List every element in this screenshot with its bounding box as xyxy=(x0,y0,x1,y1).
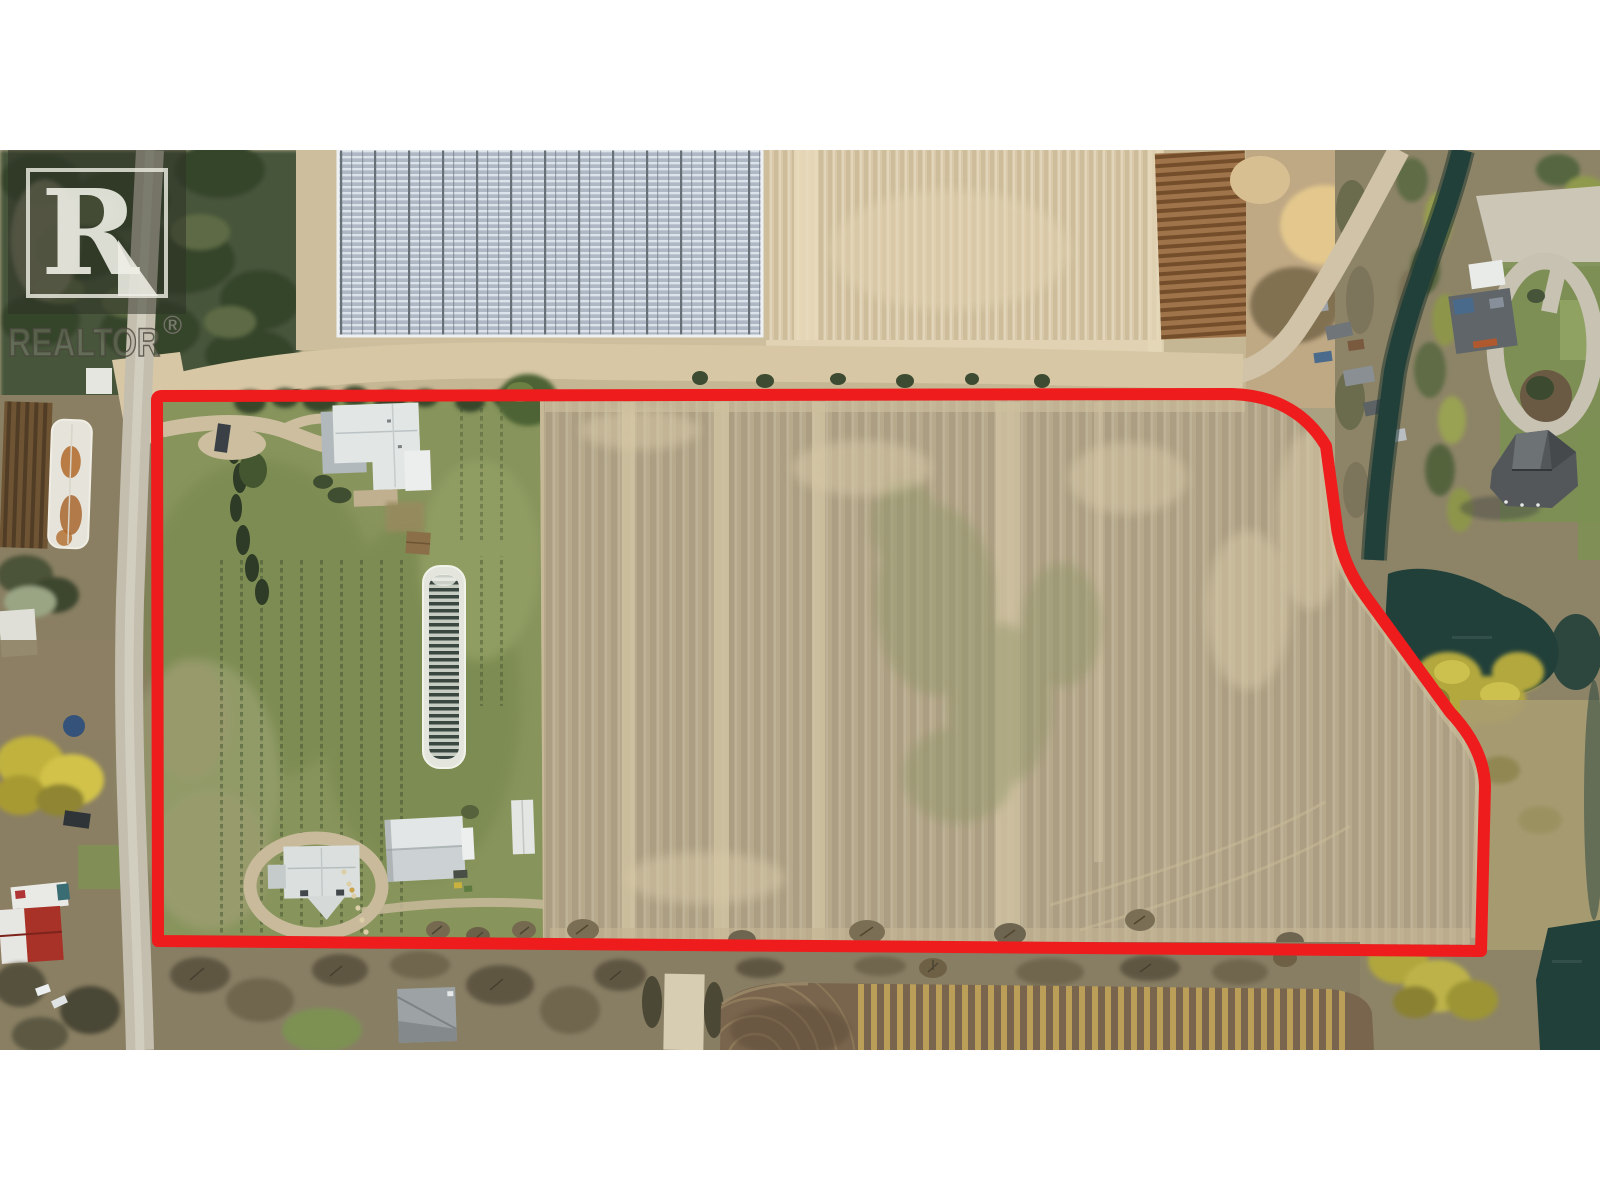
island-tree xyxy=(1526,376,1554,400)
gray-house-south xyxy=(397,987,457,1043)
aerial-property-listing-photo: R REALTOR ® xyxy=(0,0,1600,1200)
tall-white-shed xyxy=(511,800,535,855)
watermark-logo-letter: R xyxy=(41,163,140,302)
brown-shed xyxy=(405,531,430,555)
watermark-brand-text: REALTOR xyxy=(8,321,160,365)
realtor-watermark: R REALTOR ® xyxy=(8,150,186,365)
driveway-connector xyxy=(1549,262,1560,312)
small-white-shed xyxy=(86,368,112,394)
top-field xyxy=(766,149,1164,364)
greenhouse-bays xyxy=(338,149,762,336)
white-trailer xyxy=(1468,260,1505,289)
hoop-greenhouse xyxy=(423,566,465,768)
field-lane xyxy=(622,402,635,942)
orchard-rows xyxy=(466,556,510,706)
letterbox-top xyxy=(0,0,1600,150)
aerial-photo: R REALTOR ® xyxy=(0,142,1600,1162)
stubble-strips xyxy=(858,984,1350,1050)
letterbox-bottom xyxy=(0,1050,1600,1200)
garden-patch xyxy=(386,502,424,532)
garden-rows xyxy=(452,405,508,540)
registered-trademark-symbol: ® xyxy=(163,310,182,340)
round-pool xyxy=(63,715,85,737)
gray-outbuilding xyxy=(1448,288,1517,354)
south-track xyxy=(663,974,704,1051)
river-bottom-right xyxy=(1536,920,1600,1050)
greenhouse-complex xyxy=(296,148,790,350)
red-barn xyxy=(0,906,64,964)
blue-tarp xyxy=(1453,297,1475,315)
rusty-hoophouse xyxy=(48,419,92,548)
grass-patch xyxy=(282,1008,362,1052)
garden-windrows xyxy=(0,401,53,549)
